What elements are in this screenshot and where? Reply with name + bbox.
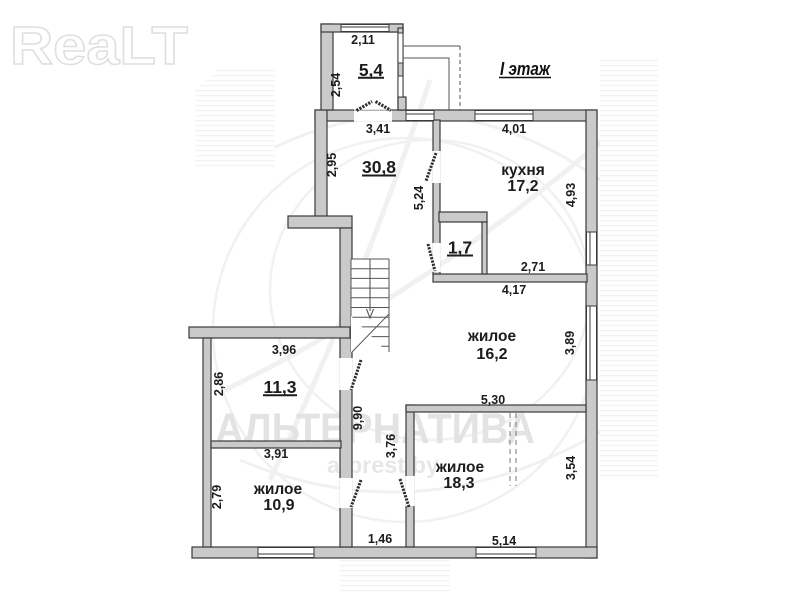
svg-text:4,01: 4,01 bbox=[502, 122, 526, 136]
svg-text:3,89: 3,89 bbox=[563, 331, 577, 355]
svg-text:1,46: 1,46 bbox=[368, 532, 392, 546]
svg-text:жилое: жилое bbox=[253, 481, 303, 498]
svg-text:9,90: 9,90 bbox=[351, 406, 365, 430]
svg-text:4,93: 4,93 bbox=[564, 183, 578, 207]
svg-text:жилое: жилое bbox=[467, 328, 517, 345]
svg-text:2,86: 2,86 bbox=[212, 372, 226, 396]
svg-text:17,2: 17,2 bbox=[507, 178, 538, 195]
svg-text:3,41: 3,41 bbox=[366, 122, 390, 136]
svg-text:ReaLT: ReaLT bbox=[10, 16, 188, 76]
svg-text:3,54: 3,54 bbox=[564, 456, 578, 480]
svg-text:жилое: жилое bbox=[435, 459, 485, 476]
svg-text:2,11: 2,11 bbox=[351, 33, 375, 47]
svg-text:30,8: 30,8 bbox=[362, 157, 396, 177]
svg-text:4,17: 4,17 bbox=[502, 283, 526, 297]
svg-text:16,2: 16,2 bbox=[476, 346, 507, 363]
svg-text:10,9: 10,9 bbox=[263, 497, 294, 514]
svg-text:2,79: 2,79 bbox=[210, 485, 224, 509]
svg-text:5,14: 5,14 bbox=[492, 534, 516, 548]
svg-text:3,76: 3,76 bbox=[384, 434, 398, 458]
svg-text:3,91: 3,91 bbox=[264, 447, 288, 461]
svg-text:2,95: 2,95 bbox=[325, 153, 339, 177]
svg-text:5,30: 5,30 bbox=[481, 393, 505, 407]
svg-text:11,3: 11,3 bbox=[263, 377, 296, 397]
svg-text:3,96: 3,96 bbox=[272, 343, 296, 357]
svg-text:2,71: 2,71 bbox=[521, 260, 545, 274]
svg-text:I этаж: I этаж bbox=[500, 59, 551, 79]
svg-text:18,3: 18,3 bbox=[443, 475, 474, 492]
svg-text:2,54: 2,54 bbox=[329, 73, 343, 97]
svg-text:5,24: 5,24 bbox=[412, 186, 426, 210]
svg-text:кухня: кухня bbox=[501, 162, 545, 179]
